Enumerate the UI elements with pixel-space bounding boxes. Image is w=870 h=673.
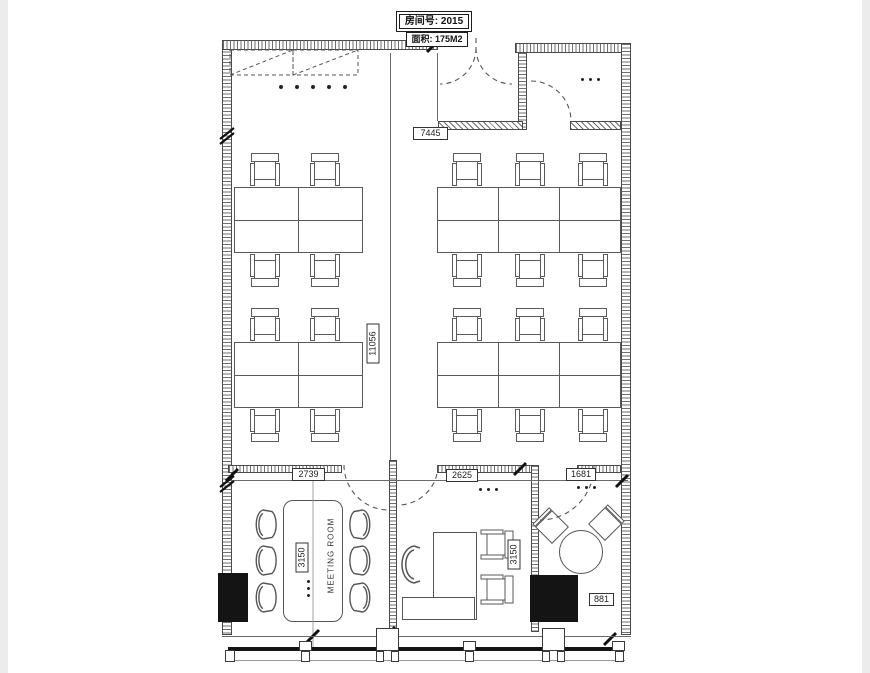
lounge-round-table — [559, 530, 603, 574]
office-chair — [452, 308, 482, 341]
mullion-post — [463, 641, 476, 651]
left-wall — [222, 40, 232, 635]
mullion-post — [465, 651, 474, 662]
office-chair — [310, 254, 340, 287]
office-chair — [452, 409, 482, 442]
floor-plan-canvas: MEETING ROOM 3150 3150 — [0, 0, 870, 673]
mullion-post — [612, 641, 625, 651]
desk-cluster-left-a — [234, 153, 363, 287]
desk-block — [437, 187, 621, 253]
dim-label-meeting-3150: 3150 — [296, 543, 309, 573]
dim-label-1681: 1681 — [566, 468, 596, 481]
facade-band — [228, 647, 625, 651]
page-edge-right — [862, 0, 870, 673]
desk-cluster-right-b — [437, 308, 621, 442]
page-edge-left — [0, 0, 8, 673]
dim-label-11056: 11056 — [367, 324, 380, 364]
mullion-post-large — [542, 628, 565, 651]
facade-outer-line — [228, 660, 625, 661]
office-chair — [578, 308, 608, 341]
executive-chair — [402, 546, 420, 583]
office-chair — [515, 254, 545, 287]
office-chair — [515, 308, 545, 341]
dim-label-2739: 2739 — [292, 468, 325, 481]
office-chair — [578, 254, 608, 287]
mullion-post — [542, 651, 550, 662]
coat-hook-dots — [279, 85, 347, 89]
mullion-post — [615, 651, 624, 662]
ellipsis-dots — [307, 580, 310, 597]
office-chair — [250, 153, 280, 186]
office-chair — [452, 254, 482, 287]
ellipsis-dots — [479, 488, 498, 491]
office-chair — [515, 153, 545, 186]
mullion-post — [391, 651, 399, 662]
mullion-post — [301, 651, 310, 662]
meeting-office-wall — [389, 460, 397, 632]
mullion-post — [376, 651, 384, 662]
office-chair — [515, 409, 545, 442]
vestibule-left-line — [437, 53, 438, 121]
mullion-post-large — [376, 628, 399, 651]
right-wall — [621, 43, 631, 635]
office-credenza — [402, 597, 475, 620]
dim-label-881: 881 — [589, 593, 614, 606]
top-right-room-south-wall — [570, 121, 621, 130]
top-right-room-door-arc — [531, 81, 571, 121]
office-chair — [250, 254, 280, 287]
desk-block — [437, 342, 621, 408]
meeting-door-arc — [344, 465, 389, 510]
dashed-cabinet-outline — [230, 50, 358, 75]
desk-cluster-left-b — [234, 308, 363, 442]
office-chair — [250, 308, 280, 341]
entry-door-left-arc — [440, 48, 476, 84]
dim-label-7445: 7445 — [413, 127, 448, 140]
desk-block — [234, 342, 363, 408]
structural-column-left — [218, 573, 248, 622]
dim-label-2625: 2625 — [446, 469, 478, 482]
desk-block — [234, 187, 363, 253]
zone-divider-line — [390, 53, 391, 466]
office-chair — [578, 153, 608, 186]
vestibule-south-wall — [438, 121, 523, 130]
office-chair — [250, 409, 280, 442]
office-chair — [578, 409, 608, 442]
entry-door-right-arc — [476, 48, 512, 84]
room-number-label: 房间号: 2015 — [396, 11, 472, 32]
office-chair — [310, 308, 340, 341]
office-chair — [310, 153, 340, 186]
office-door-arc — [398, 465, 438, 505]
facade-inner-line — [222, 636, 631, 637]
area-label: 面积: 175M2 — [406, 32, 468, 47]
structural-column-lounge — [530, 575, 578, 622]
ellipsis-dots — [581, 78, 600, 81]
office-chair — [310, 409, 340, 442]
desk-cluster-right-a — [437, 153, 621, 287]
ellipsis-dots — [577, 486, 596, 489]
office-chair — [452, 153, 482, 186]
mullion-post — [225, 650, 235, 662]
entry-vestibule-wall — [518, 52, 527, 130]
top-wall-right — [515, 43, 631, 53]
mullion-post — [557, 651, 565, 662]
guest-chair — [481, 575, 514, 605]
dim-label-office-3150: 3150 — [508, 540, 521, 570]
meeting-room-label: MEETING ROOM — [327, 516, 336, 596]
mullion-post — [299, 641, 312, 651]
